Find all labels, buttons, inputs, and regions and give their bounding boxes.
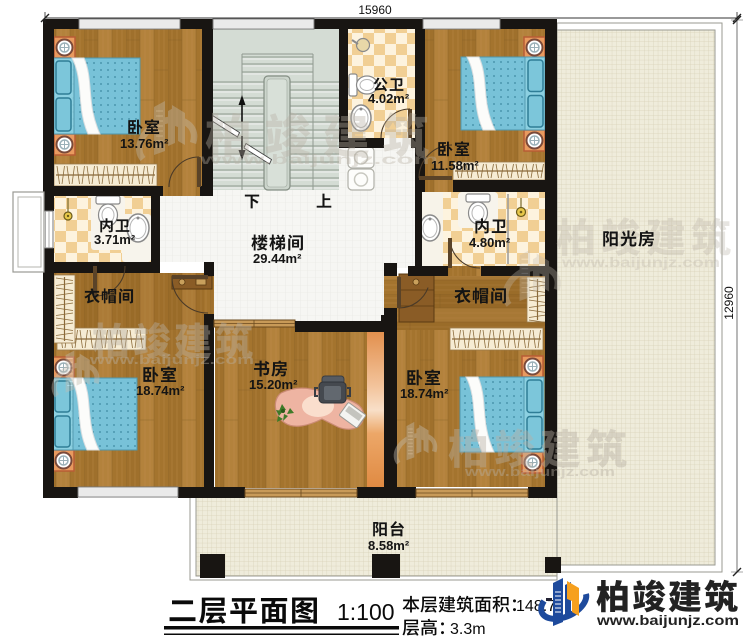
svg-text:11.58m²: 11.58m²: [431, 158, 479, 173]
svg-text:3.3m: 3.3m: [450, 621, 486, 638]
svg-text:www.baijunjz.com: www.baijunjz.com: [89, 352, 254, 367]
svg-text:3.71m²: 3.71m²: [94, 232, 136, 247]
svg-text:1:100: 1:100: [337, 599, 395, 625]
svg-text:13.76m²: 13.76m²: [120, 136, 169, 151]
svg-text:www.baijunjz.com: www.baijunjz.com: [464, 464, 615, 479]
svg-text:www.baijunjz.com: www.baijunjz.com: [561, 254, 720, 270]
svg-text:www.baijunjz.com: www.baijunjz.com: [198, 151, 438, 167]
svg-text:12960: 12960: [722, 286, 736, 320]
svg-text:15.20m²: 15.20m²: [249, 377, 298, 392]
svg-text:4.80m²: 4.80m²: [469, 235, 511, 250]
svg-text:18.74m²: 18.74m²: [136, 383, 185, 398]
svg-text:8.58m²: 8.58m²: [368, 538, 410, 553]
svg-text:www.baijunjz.com: www.baijunjz.com: [596, 612, 739, 628]
svg-text:4.02m²: 4.02m²: [368, 91, 410, 106]
svg-text:29.44m²: 29.44m²: [253, 251, 302, 266]
svg-text:15960: 15960: [358, 3, 392, 17]
svg-text:18.74m²: 18.74m²: [400, 386, 449, 401]
